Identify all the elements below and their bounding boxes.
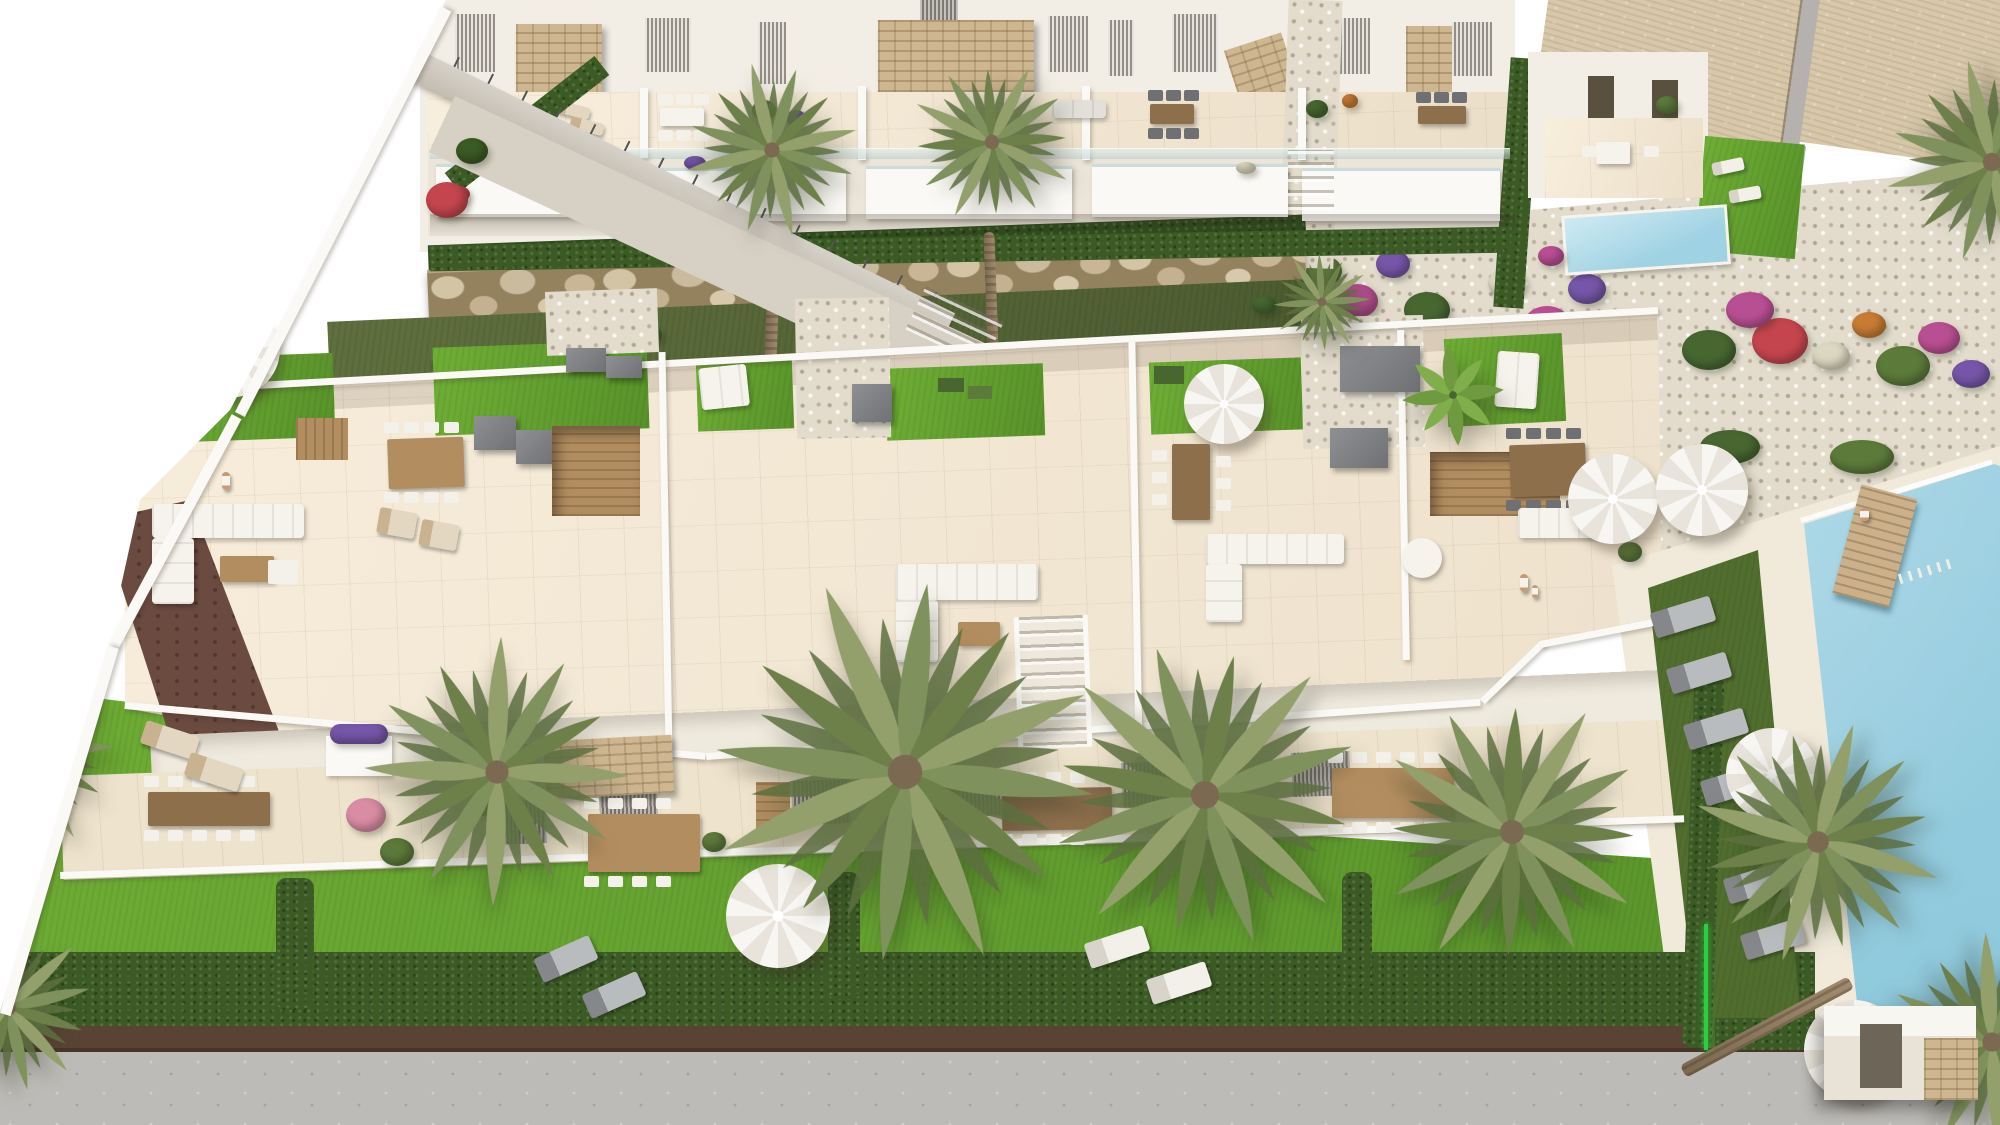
- bougainvillea-magenta: [1918, 322, 1960, 354]
- dining-chairs: [144, 830, 159, 841]
- villa-chairs: [1582, 146, 1597, 157]
- villa-private-pool: [1561, 204, 1731, 275]
- dining-chairs: [1152, 450, 1167, 461]
- orange-flower-pot: [1342, 94, 1358, 108]
- potted-plant: [1306, 100, 1328, 118]
- parasol: [1568, 454, 1658, 544]
- orange-flower-shrub: [1852, 312, 1886, 338]
- villa-dining-table: [1596, 142, 1630, 164]
- solarium-lawn: [433, 340, 650, 435]
- dining-table: [1418, 106, 1466, 124]
- coffee-table: [220, 556, 274, 582]
- window-louvered: [1048, 16, 1088, 72]
- outdoor-corner-sofa: [1206, 534, 1344, 564]
- window-louvered: [1452, 22, 1492, 76]
- shrub: [1682, 330, 1736, 370]
- dining-chairs: [658, 94, 673, 105]
- armchair: [268, 560, 298, 584]
- ac-unit-box: [606, 356, 642, 378]
- banana-plant: [1388, 330, 1518, 460]
- lot-boundary-line: [1704, 924, 1708, 1050]
- garden-dining-table: [148, 792, 270, 826]
- child-standing: [1532, 585, 1538, 598]
- dining-chairs: [658, 130, 673, 141]
- aerial-render: [0, 0, 2000, 1125]
- window-louvered: [1108, 20, 1134, 76]
- stairwell-wood-walls: [552, 426, 640, 516]
- person-standing: [1520, 574, 1528, 592]
- dining-table: [1172, 444, 1210, 520]
- ac-unit-box: [566, 348, 606, 372]
- dining-chairs: [1148, 90, 1163, 101]
- planter-box: [1154, 366, 1184, 384]
- storage-box: [516, 430, 556, 464]
- dining-chairs: [1148, 128, 1163, 139]
- storage-box: [1330, 428, 1388, 468]
- balcony-flowers-white: [1236, 162, 1256, 174]
- villa-potted-plant: [1656, 96, 1678, 114]
- agave-shrub: [1830, 440, 1894, 474]
- dining-chairs: [1416, 92, 1431, 103]
- window-louvered: [645, 18, 691, 72]
- dining-table: [387, 437, 465, 490]
- day-bed: [698, 364, 750, 411]
- person-standing: [222, 472, 230, 490]
- planter-box: [968, 386, 992, 399]
- ac-unit-box: [852, 384, 892, 422]
- gravel-patch: [545, 288, 659, 356]
- path-steps: [1288, 150, 1334, 210]
- small-palm: [1267, 247, 1377, 357]
- poolside-plant: [1618, 542, 1642, 562]
- storage-box: [474, 416, 516, 450]
- dining-table: [1150, 104, 1194, 124]
- round-table: [1402, 538, 1442, 578]
- shrub: [1876, 346, 1930, 386]
- dining-chairs: [384, 422, 399, 433]
- bougainvillea-purple: [1568, 274, 1606, 304]
- bougainvillea-red-tree: [426, 182, 468, 218]
- dining-chairs: [144, 776, 159, 787]
- bougainvillea-magenta: [1726, 292, 1774, 328]
- dining-chairs: [384, 492, 399, 503]
- solarium-lawn: [885, 363, 1045, 440]
- parasol: [1184, 364, 1264, 444]
- hedge-ball: [456, 138, 488, 164]
- window-louvered: [1172, 14, 1218, 72]
- outdoor-kitchen: [296, 418, 348, 460]
- kiosk-stone-pillar: [1924, 1038, 1978, 1100]
- planter-box: [938, 378, 964, 392]
- poolside-bougainvillea: [1538, 246, 1564, 266]
- pool-parasol: [1656, 444, 1748, 536]
- hedge-column: [276, 878, 314, 1010]
- bougainvillea-purple: [1952, 360, 1990, 388]
- person-sitting-pool: [1860, 508, 1869, 521]
- kiosk-door-slot: [1860, 1024, 1902, 1088]
- balcony-front: [1092, 164, 1288, 217]
- white-flower-shrub: [1812, 342, 1850, 370]
- dining-chairs: [1216, 456, 1231, 467]
